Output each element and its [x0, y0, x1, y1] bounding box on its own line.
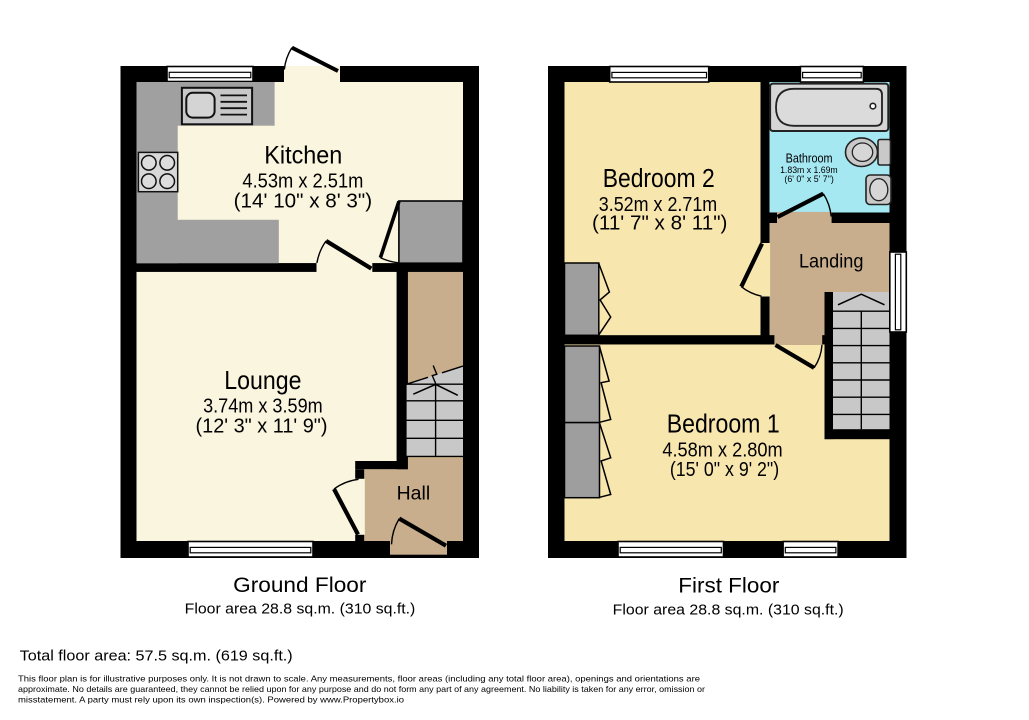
svg-text:Hall: Hall: [397, 484, 431, 505]
svg-text:Lounge: Lounge: [224, 365, 301, 395]
svg-text:Floor area 28.8 sq.m. (310 sq.: Floor area 28.8 sq.m. (310 sq.ft.): [185, 600, 416, 617]
svg-text:Landing: Landing: [799, 252, 864, 273]
svg-text:3.74m x 3.59m: 3.74m x 3.59m: [203, 396, 323, 418]
svg-text:Ground Floor: Ground Floor: [233, 574, 366, 597]
svg-text:(15' 0" x 9' 2"): (15' 0" x 9' 2"): [670, 459, 779, 481]
svg-text:Floor area 28.8 sq.m. (310 sq.: Floor area 28.8 sq.m. (310 sq.ft.): [613, 602, 844, 619]
svg-text:(11' 7" x 8' 11"): (11' 7" x 8' 11"): [592, 213, 727, 235]
svg-text:(14' 10" x 8' 3"): (14' 10" x 8' 3"): [234, 191, 372, 213]
svg-text:Bedroom 1: Bedroom 1: [667, 411, 780, 439]
svg-text:This floor plan is for illustr: This floor plan is for illustrative purp…: [18, 675, 701, 684]
svg-text:approximate. No details are gu: approximate. No details are guaranteed, …: [18, 685, 705, 694]
svg-text:4.53m x 2.51m: 4.53m x 2.51m: [242, 170, 363, 192]
svg-text:(12' 3" x 11' 9"): (12' 3" x 11' 9"): [196, 415, 328, 437]
svg-text:First Floor: First Floor: [678, 575, 779, 598]
svg-text:Kitchen: Kitchen: [264, 141, 342, 169]
svg-text:Total floor area: 57.5 sq.m. (: Total floor area: 57.5 sq.m. (619 sq.ft.…: [20, 649, 293, 665]
svg-text:(6' 0" x 5' 7"): (6' 0" x 5' 7"): [784, 174, 833, 185]
svg-text:Bedroom 2: Bedroom 2: [603, 165, 715, 193]
svg-text:Bathroom: Bathroom: [786, 151, 833, 166]
svg-text:misstatement. A party must rel: misstatement. A party must rely upon its…: [18, 696, 405, 705]
